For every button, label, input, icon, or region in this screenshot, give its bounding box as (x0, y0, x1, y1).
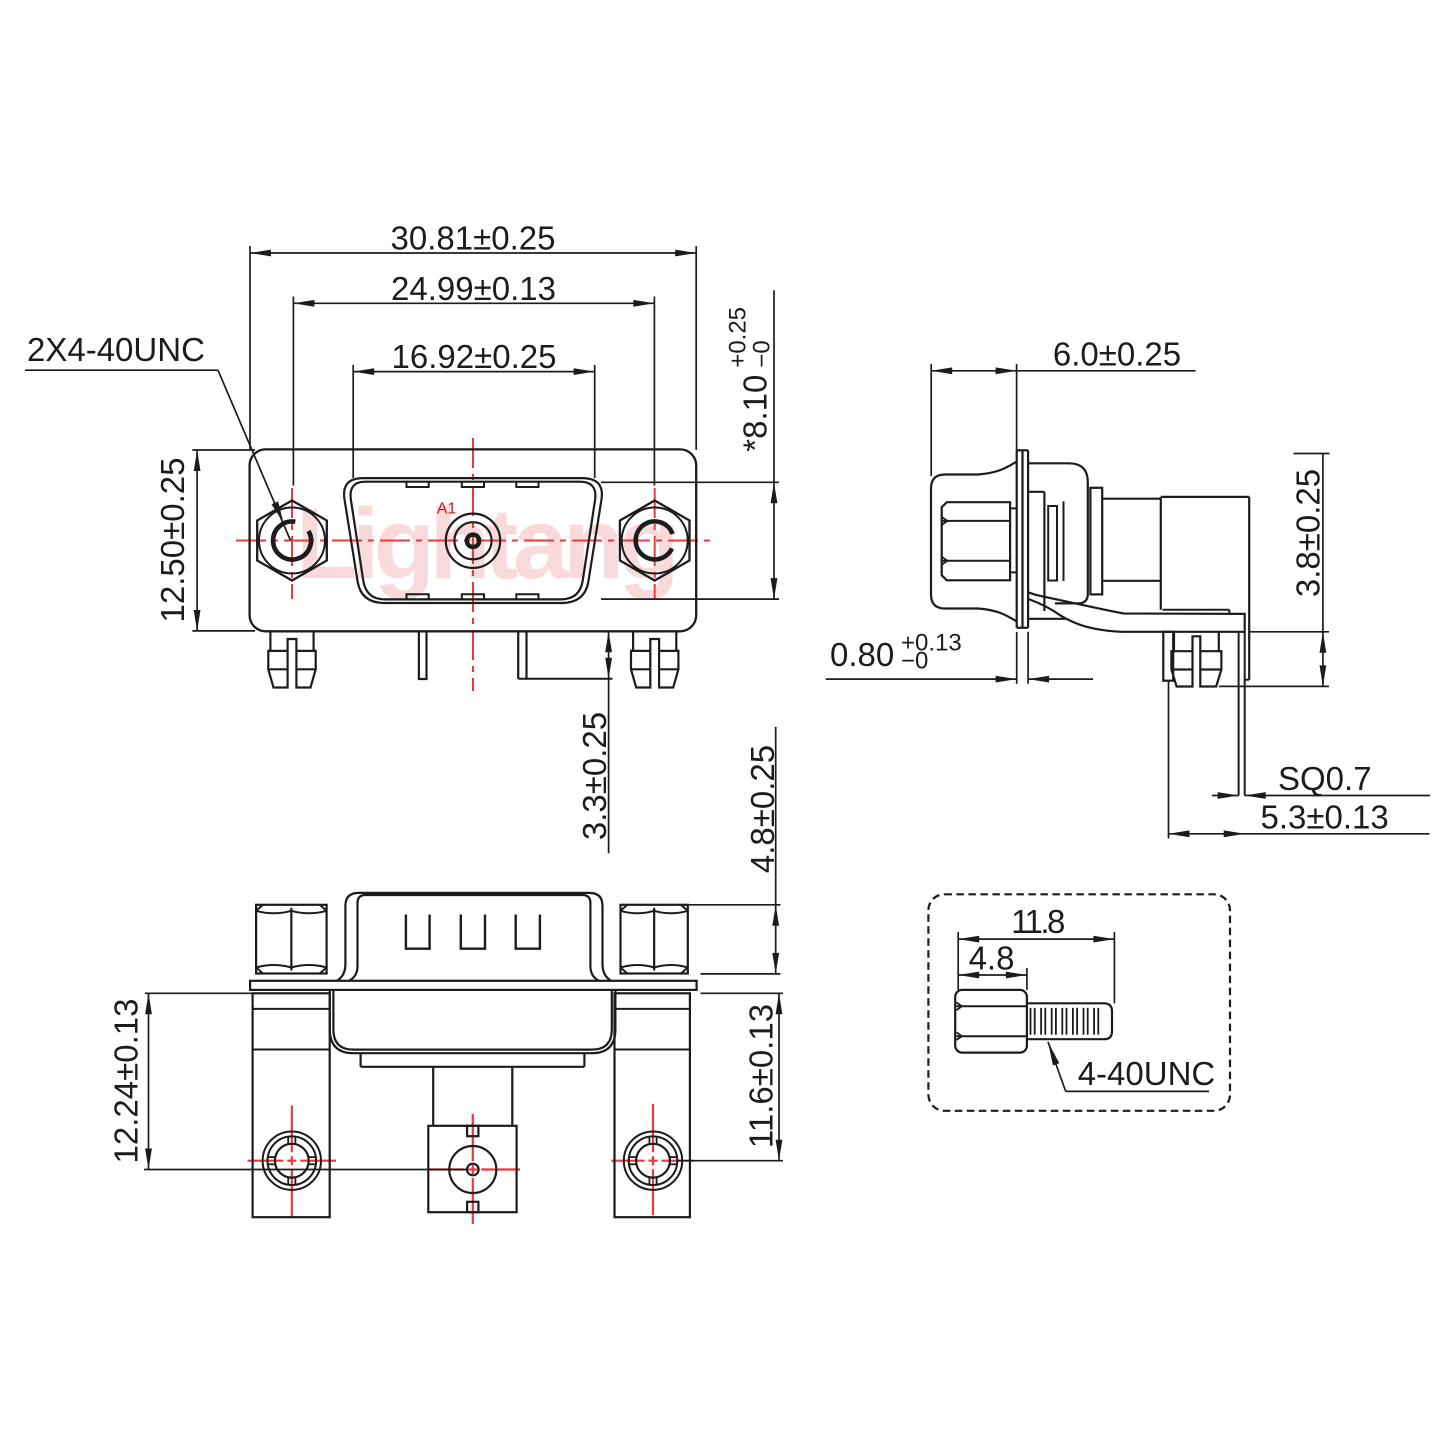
svg-text:12.24±0.13: 12.24±0.13 (108, 999, 145, 1164)
svg-text:*8.10: *8.10 (737, 375, 774, 452)
svg-text:30.81±0.25: 30.81±0.25 (391, 220, 556, 257)
svg-text:24.99±0.13: 24.99±0.13 (391, 270, 556, 307)
svg-text:SQ0.7: SQ0.7 (1278, 760, 1372, 797)
svg-text:+0.25: +0.25 (725, 307, 752, 368)
svg-text:−0: −0 (901, 648, 928, 675)
svg-text:5.3±0.13: 5.3±0.13 (1261, 799, 1389, 836)
svg-text:−0: −0 (749, 340, 776, 367)
svg-text:2X4-40UNC: 2X4-40UNC (27, 331, 205, 368)
svg-text:11.6±0.13: 11.6±0.13 (743, 1004, 780, 1148)
svg-text:4-40UNC: 4-40UNC (1078, 1055, 1216, 1092)
svg-text:0.80: 0.80 (830, 636, 894, 673)
svg-text:4.8±0.25: 4.8±0.25 (744, 745, 781, 873)
svg-text:11.8: 11.8 (1011, 903, 1064, 940)
svg-text:4.8: 4.8 (969, 940, 1015, 977)
svg-text:6.0±0.25: 6.0±0.25 (1053, 336, 1181, 373)
svg-text:A1: A1 (437, 500, 457, 517)
svg-text:3.3±0.25: 3.3±0.25 (576, 712, 613, 840)
svg-text:16.92±0.25: 16.92±0.25 (392, 338, 557, 375)
svg-text:12.50±0.25: 12.50±0.25 (154, 458, 191, 623)
svg-text:3.8±0.25: 3.8±0.25 (1290, 469, 1327, 597)
